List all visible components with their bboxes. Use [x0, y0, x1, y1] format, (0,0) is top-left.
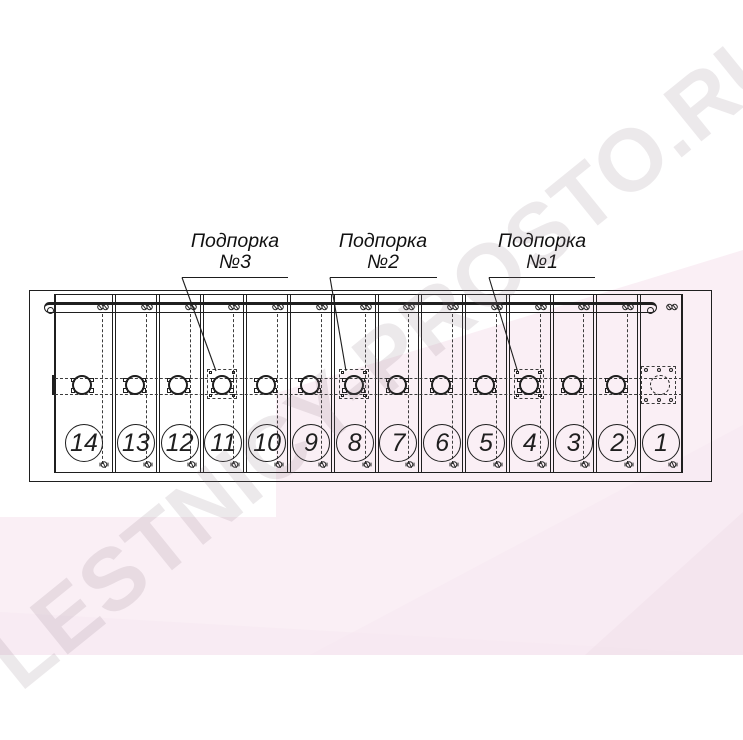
step-number-badge: 3 [555, 424, 593, 462]
step-number-badge: 5 [467, 424, 505, 462]
step-number: 10 [253, 429, 281, 458]
callout-number: №1 [477, 252, 607, 273]
step-board-11: 11 [203, 295, 245, 472]
pipe-clamp-icon [300, 375, 320, 395]
step-number-badge: 7 [379, 424, 417, 462]
screw-pair-icon [228, 303, 240, 311]
screw-icon [187, 460, 197, 469]
step-number-badge: 4 [511, 424, 549, 462]
screw-pair-icon [491, 303, 503, 311]
pipe-clamp-icon [72, 375, 92, 395]
screw-icon [624, 460, 634, 469]
callout-support-3: Подпорка №3 [170, 231, 300, 273]
pipe-clamp-dashed-icon [650, 375, 670, 395]
step-board-2: 2 [596, 295, 638, 472]
step-board-7: 7 [378, 295, 420, 472]
step-number: 5 [479, 429, 493, 458]
staircase-drawing-frame: 1413121110987654321 [29, 290, 712, 482]
callout-support-1: Подпорка №1 [477, 231, 607, 273]
screw-pair-icon [97, 303, 109, 311]
step-number-badge: 13 [117, 424, 155, 462]
step-number: 1 [654, 429, 668, 458]
screw-icon [449, 460, 459, 469]
screw-pair-icon [403, 303, 415, 311]
pipe-clamp-icon [431, 375, 451, 395]
step-number: 12 [166, 429, 194, 458]
pipe-clamp-icon [475, 375, 495, 395]
step-board-10: 10 [246, 295, 288, 472]
screw-icon [143, 460, 153, 469]
screw-icon [99, 460, 109, 469]
screw-pair-icon [316, 303, 328, 311]
step-number: 4 [523, 429, 537, 458]
step-number: 2 [610, 429, 624, 458]
pipe-clamp-icon [519, 375, 539, 395]
step-number: 11 [210, 429, 236, 458]
step-number-badge: 14 [65, 424, 103, 462]
step-number-badge: 12 [161, 424, 199, 462]
callout-title: Подпорка [170, 231, 300, 252]
step-board-13: 13 [115, 295, 157, 472]
callout-number: №2 [318, 252, 448, 273]
screw-icon [405, 460, 415, 469]
step-number: 7 [392, 429, 406, 458]
screw-icon [230, 460, 240, 469]
step-number: 8 [348, 429, 362, 458]
step-board-14: 14 [55, 295, 113, 472]
screw-icon [493, 460, 503, 469]
screw-pair-icon [360, 303, 372, 311]
pipe-clamp-icon [344, 375, 364, 395]
step-board-3: 3 [553, 295, 595, 472]
pipe-clamp-icon [212, 375, 232, 395]
step-number-badge: 2 [598, 424, 636, 462]
screw-icon [318, 460, 328, 469]
screw-icon [362, 460, 372, 469]
step-board-9: 9 [290, 295, 332, 472]
screw-icon [668, 460, 678, 469]
step-board-5: 5 [465, 295, 507, 472]
step-number-badge: 1 [642, 424, 680, 462]
step-number: 9 [304, 429, 318, 458]
callout-support-2: Подпорка №2 [318, 231, 448, 273]
steps-panel: 1413121110987654321 [54, 294, 683, 473]
handrail-end-cap-icon [47, 307, 54, 314]
callout-number: №3 [170, 252, 300, 273]
step-number-badge: 9 [292, 424, 330, 462]
step-board-4: 4 [509, 295, 551, 472]
step-board-12: 12 [159, 295, 201, 472]
screw-pair-icon [622, 303, 634, 311]
step-number-badge: 10 [248, 424, 286, 462]
pipe-clamp-icon [256, 375, 276, 395]
pipe-clamp-icon [562, 375, 582, 395]
callout-title: Подпорка [477, 231, 607, 252]
step-number: 13 [122, 429, 150, 458]
screw-pair-icon [185, 303, 197, 311]
screw-icon [274, 460, 284, 469]
screw-pair-icon [535, 303, 547, 311]
step-number: 6 [435, 429, 449, 458]
screw-pair-icon [578, 303, 590, 311]
screw-pair-icon [141, 303, 153, 311]
screw-pair-icon [666, 303, 678, 311]
step-number-badge: 11 [204, 424, 242, 462]
screw-pair-icon [272, 303, 284, 311]
step-number-badge: 8 [336, 424, 374, 462]
step-number: 14 [70, 429, 98, 458]
pipe-clamp-icon [606, 375, 626, 395]
screw-icon [537, 460, 547, 469]
screw-pair-icon [447, 303, 459, 311]
pipe-clamp-icon [387, 375, 407, 395]
step-board-6: 6 [421, 295, 463, 472]
step-number: 3 [567, 429, 581, 458]
pipe-clamp-icon [168, 375, 188, 395]
callout-title: Подпорка [318, 231, 448, 252]
step-board-1: 1 [640, 295, 682, 472]
screw-icon [580, 460, 590, 469]
pipe-clamp-icon [125, 375, 145, 395]
step-board-8: 8 [334, 295, 376, 472]
step-number-badge: 6 [423, 424, 461, 462]
